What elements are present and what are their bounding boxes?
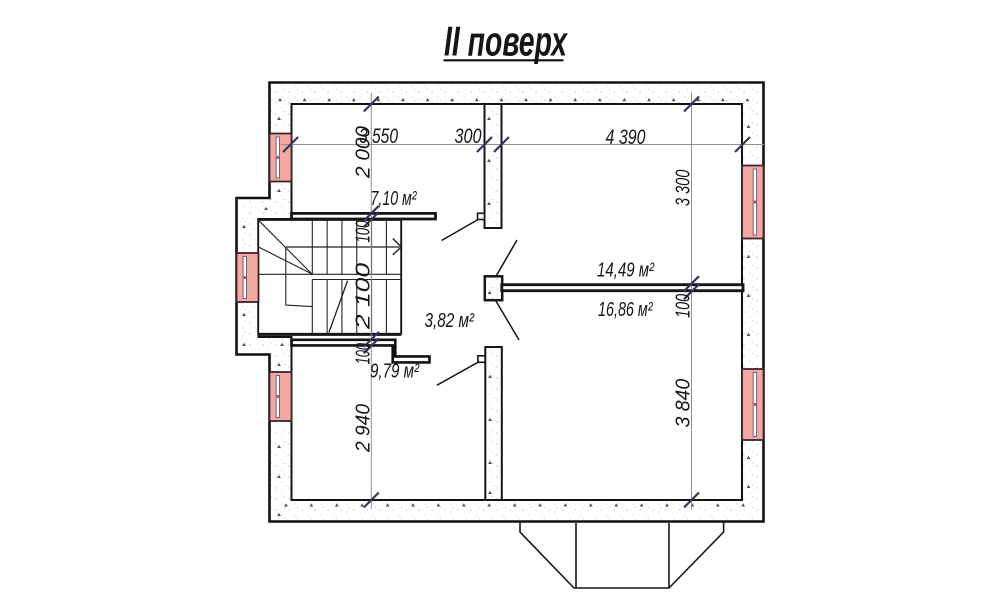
svg-text:2 000: 2 000 xyxy=(353,126,375,179)
svg-text:2 940: 2 940 xyxy=(353,404,375,453)
svg-text:7,10 м²: 7,10 м² xyxy=(371,188,418,210)
svg-text:3 840: 3 840 xyxy=(673,379,695,428)
svg-text:3 300: 3 300 xyxy=(673,170,695,207)
svg-text:II поверх: II поверх xyxy=(444,18,568,65)
svg-text:16,86 м²: 16,86 м² xyxy=(598,299,653,321)
svg-text:14,49 м²: 14,49 м² xyxy=(597,259,655,281)
svg-text:100: 100 xyxy=(353,221,375,243)
svg-text:2 100: 2 100 xyxy=(353,263,375,330)
svg-text:100: 100 xyxy=(673,294,695,318)
svg-text:3,82 м²: 3,82 м² xyxy=(425,310,476,332)
svg-text:4 390: 4 390 xyxy=(606,126,646,149)
svg-text:9,79 м²: 9,79 м² xyxy=(370,361,420,383)
svg-text:300: 300 xyxy=(455,125,482,148)
